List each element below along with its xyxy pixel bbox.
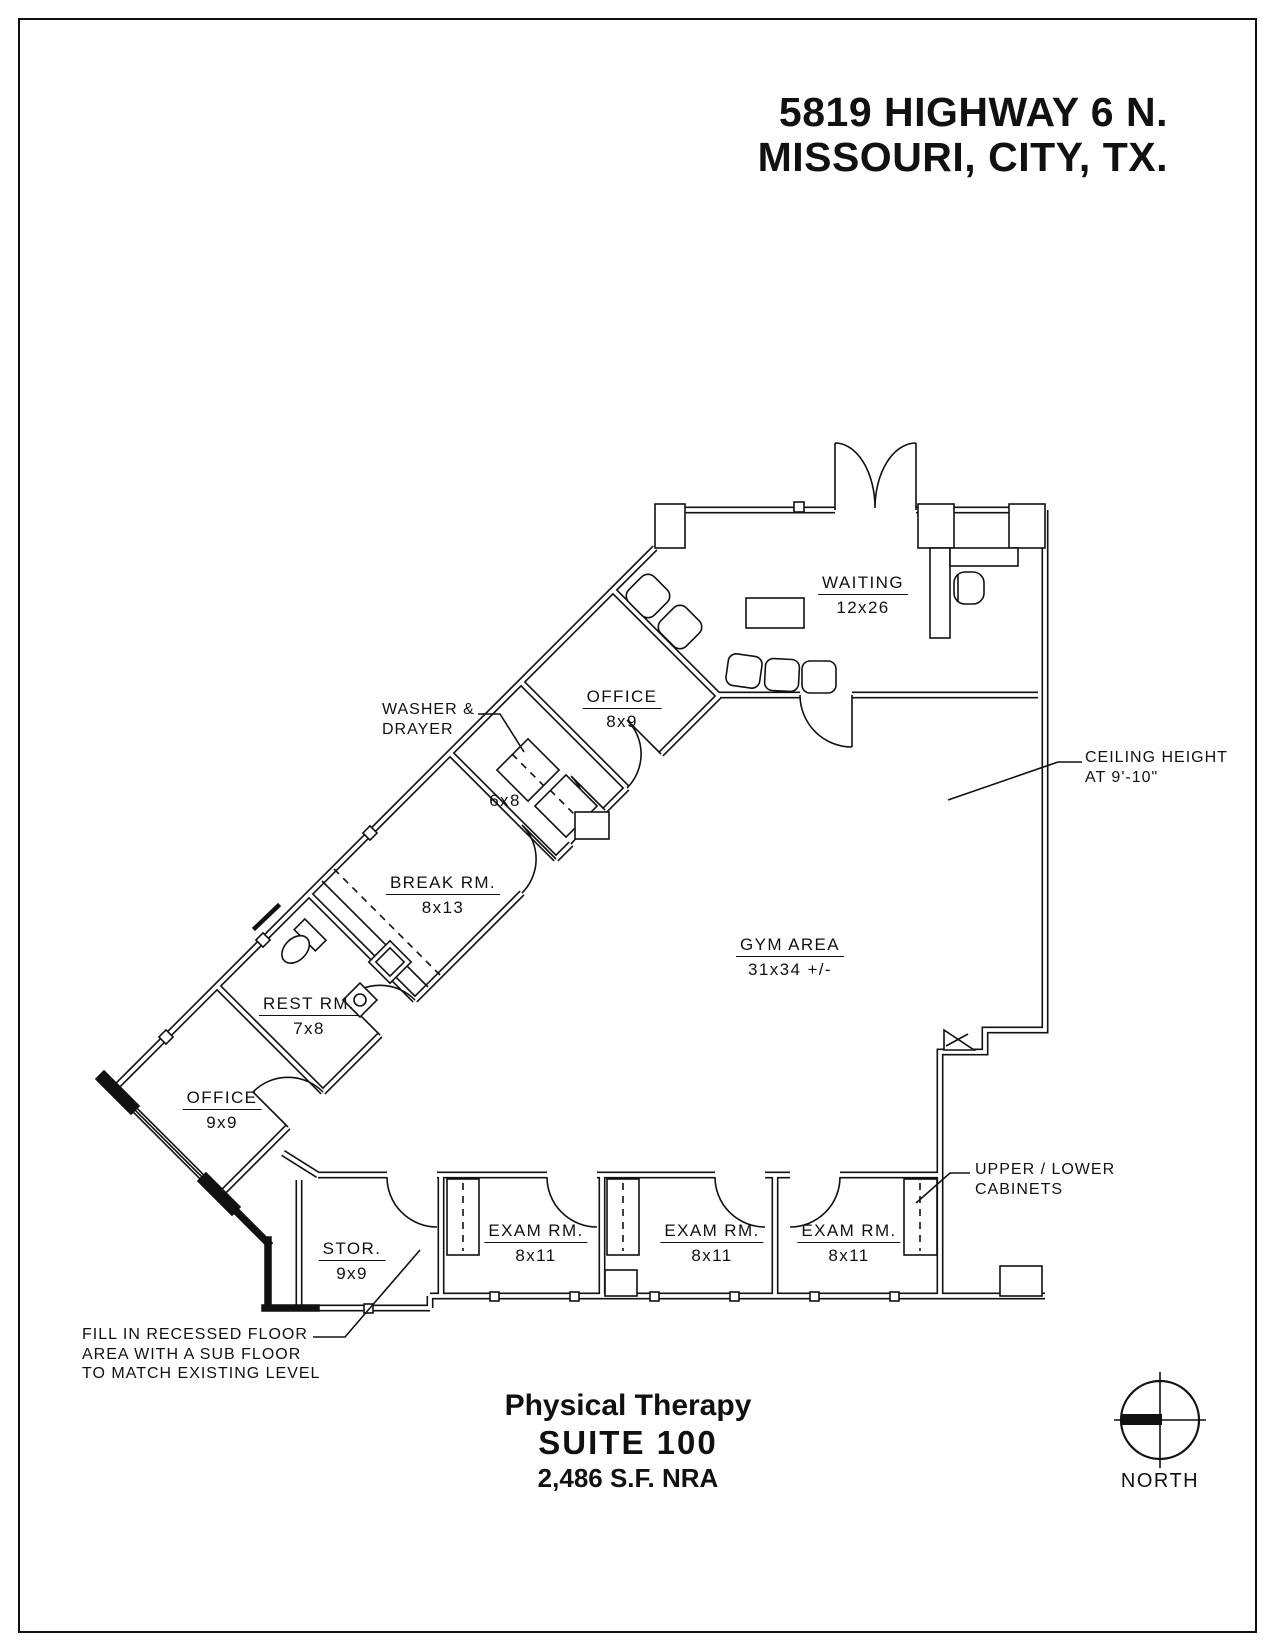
pilaster [1009, 504, 1045, 548]
room-label-exam3: EXAM RM. 8x11 [797, 1220, 900, 1266]
exam-side-table [605, 1270, 637, 1296]
recessed-floor-note: FILL IN RECESSED FLOOR AREA WITH A SUB F… [82, 1325, 320, 1384]
kitchen-sink [369, 941, 411, 983]
room-label-break-room: BREAK RM. 8x13 [386, 872, 500, 918]
facade-column [1000, 1266, 1042, 1296]
project-name: Physical Therapy [428, 1388, 828, 1424]
pilaster [918, 504, 954, 548]
washer-note: WASHER & DRAYER [382, 700, 475, 739]
break-room-door [522, 825, 556, 893]
room-label-storage: STOR. 9x9 [319, 1238, 386, 1284]
sheet-title: 5819 HIGHWAY 6 N. MISSOURI, CITY, TX. [758, 90, 1168, 180]
toilet [274, 919, 326, 971]
room-label-office-top: OFFICE 8x9 [583, 686, 662, 732]
entry-double-door [835, 443, 916, 510]
corner-column-detail [944, 1030, 974, 1050]
drawing-sheet: 5819 HIGHWAY 6 N. MISSOURI, CITY, TX. WA… [0, 0, 1275, 1651]
room-label-laundry: 6x8 [489, 790, 521, 811]
room-label-rest-room: REST RM. 7x8 [259, 993, 359, 1039]
pilaster [655, 504, 685, 548]
north-compass-icon [1114, 1372, 1206, 1468]
room-label-gym: GYM AREA 31x34 +/- [736, 934, 844, 980]
ceiling-note-leader [948, 762, 1082, 800]
gym-equipment [575, 812, 609, 839]
room-label-waiting: WAITING 12x26 [818, 572, 908, 618]
suite-number: SUITE 100 [428, 1424, 828, 1462]
sheet-title-line2: MISSOURI, CITY, TX. [758, 135, 1168, 180]
storage-door [387, 1177, 437, 1227]
room-label-exam1: EXAM RM. 8x11 [484, 1220, 587, 1266]
reception-chair [954, 572, 984, 604]
waiting-gym-door [800, 695, 852, 747]
area-label: 2,486 S.F. NRA [428, 1462, 828, 1494]
window-mullion [794, 502, 804, 512]
entry-bold-wall [228, 1203, 316, 1308]
title-block: Physical Therapy SUITE 100 2,486 S.F. NR… [428, 1388, 828, 1494]
waiting-table [746, 598, 804, 628]
room-label-office-lower: OFFICE 9x9 [183, 1087, 262, 1133]
north-label: NORTH [1110, 1470, 1210, 1493]
room-label-exam2: EXAM RM. 8x11 [660, 1220, 763, 1266]
ceiling-note: CEILING HEIGHT AT 9'-10" [1085, 748, 1228, 787]
sheet-title-line1: 5819 HIGHWAY 6 N. [758, 90, 1168, 135]
cabinets-note: UPPER / LOWER CABINETS [975, 1160, 1115, 1199]
